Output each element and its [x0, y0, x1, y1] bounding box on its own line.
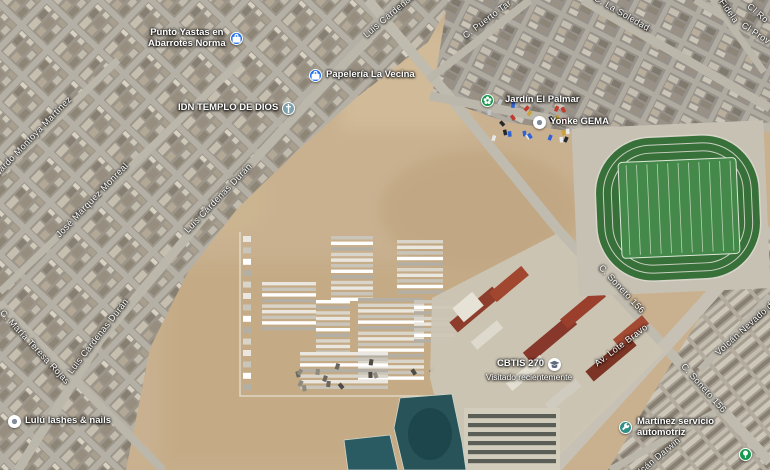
street-label-av-lote-bravo: Av. Lote Bravo [593, 322, 650, 368]
street-label-volcan-nevado: Volcán Nevado de [713, 297, 770, 358]
poi-label: CBTIS 270 [497, 359, 544, 370]
street-label-soneto-156-upper: C. Soneto 156 [597, 263, 647, 316]
street-label-puerto-tar: C. Puerto Tar [461, 0, 513, 40]
map-labels-layer: Ricardo Montoya Martínez José Márquez Mo… [0, 0, 770, 470]
tree-icon[interactable] [739, 448, 752, 461]
poi-label: IDN TEMPLO DE DIOS [178, 103, 278, 114]
poi-lulu-lashes-nails[interactable]: Lulú lashes & nails [8, 415, 111, 428]
street-label-luis-cardenas-duran-low: Luis Cárdenas Durán [66, 296, 131, 375]
street-label-volcan-darwin: Volcán Darwin [628, 435, 682, 470]
poi-label: Jardín El Palmar [505, 95, 579, 106]
church-icon[interactable] [282, 102, 295, 115]
street-label-jose-marquez-monreal: José Márquez Monreal [54, 161, 130, 240]
poi-label: Martínez servicio [637, 417, 714, 428]
flower-icon[interactable] [481, 94, 494, 107]
poi-idn-templo-de-dios[interactable]: IDN TEMPLO DE DIOS [178, 102, 295, 115]
street-label-luis-cardenas-duran-mid: Luis Cárdenas Durán [182, 161, 254, 235]
poi-label: automotriz [637, 428, 714, 439]
poi-papeleria-la-vecina[interactable]: Papelería La Vecina [309, 69, 415, 82]
poi-label: Punto Yastas en [150, 28, 223, 39]
poi-jardin-el-palmar[interactable]: Jardín El Palmar [481, 94, 579, 107]
dot-icon[interactable] [8, 415, 21, 428]
school-icon[interactable] [548, 358, 561, 371]
street-label-la-soledad: C. La Soledad [593, 0, 652, 33]
satellite-map-canvas[interactable]: Ricardo Montoya Martínez José Márquez Mo… [0, 0, 770, 470]
wrench-icon[interactable] [619, 421, 632, 434]
poi-park[interactable] [739, 448, 752, 461]
poi-label: Yonke GEMA [550, 117, 609, 128]
dot-icon[interactable] [533, 116, 546, 129]
poi-martinez-servicio[interactable]: Martínez servicio automotriz [619, 417, 714, 438]
street-label-ricardo-montoya-martinez: Ricardo Montoya Martínez [0, 94, 74, 184]
street-label-maria-teresa-rojas: C. María Teresa Rojas [0, 308, 72, 386]
poi-yonke-gema[interactable]: Yonke GEMA [533, 116, 609, 129]
poi-cbtis-270[interactable]: CBTIS 270 Visitado recientemente [481, 358, 577, 382]
street-label-cl-ro: Cl Ro [745, 1, 770, 24]
street-label-soneto-156-lower: C. Soneto 156 [679, 361, 728, 414]
bag-icon[interactable] [309, 69, 322, 82]
poi-label: Papelería La Vecina [326, 70, 415, 81]
visited-recently-note: Visitado recientemente [486, 372, 572, 382]
poi-label: Abarrotes Norma [148, 39, 226, 50]
street-label-fidela: Fidela [717, 0, 741, 25]
poi-label: Lulú lashes & nails [25, 416, 111, 427]
poi-punto-yastas[interactable]: Punto Yastas en Abarrotes Norma [148, 28, 243, 49]
street-label-luis-cardenas-duran-top: Luis Cárdenas Durán [361, 0, 438, 40]
bag-icon[interactable] [230, 32, 243, 45]
